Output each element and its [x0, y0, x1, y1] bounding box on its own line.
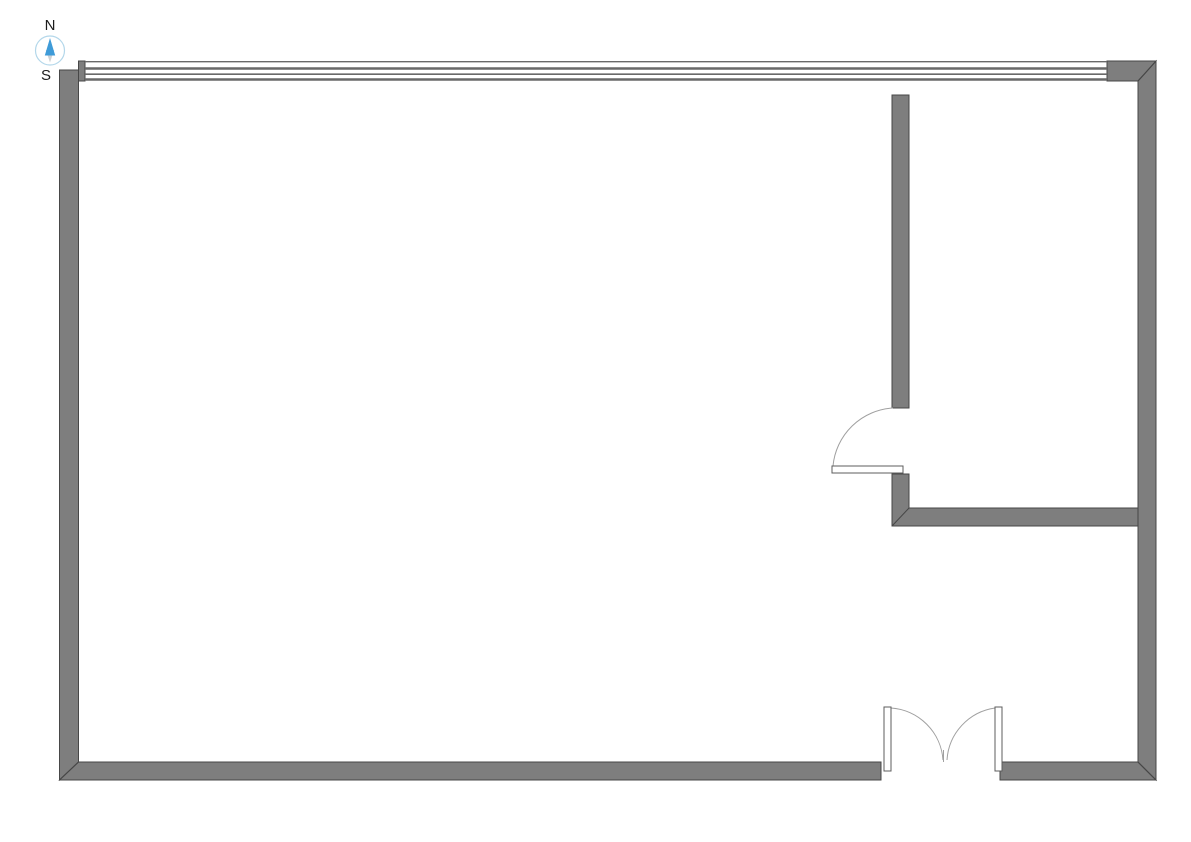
floor-plan-page: N S: [0, 0, 1191, 842]
partition-wall-upper: [892, 95, 909, 408]
compass-north-label: N: [45, 17, 56, 34]
compass-south-label: S: [41, 67, 51, 84]
double-door-left-swing: [891, 708, 943, 760]
partition-door-leaf: [832, 466, 903, 473]
double-door-left-leaf: [884, 707, 891, 771]
bottom-wall-right: [1000, 762, 1156, 780]
wall-miters-layer: [60, 61, 1157, 780]
double-door-right-swing: [947, 708, 995, 760]
partition-door-swing: [833, 408, 893, 466]
door-swings-layer: [833, 408, 995, 762]
partition-wall-lower: [892, 474, 1138, 526]
floor-plan-drawing: N S: [0, 0, 1191, 842]
bottom-wall-left: [60, 762, 882, 780]
window-left-cap: [79, 61, 86, 81]
double-door-right-leaf: [995, 707, 1002, 771]
left-wall: [60, 70, 79, 780]
window-layer: [85, 62, 1107, 80]
walls-layer: [60, 61, 1157, 780]
right-wall: [1138, 61, 1156, 780]
